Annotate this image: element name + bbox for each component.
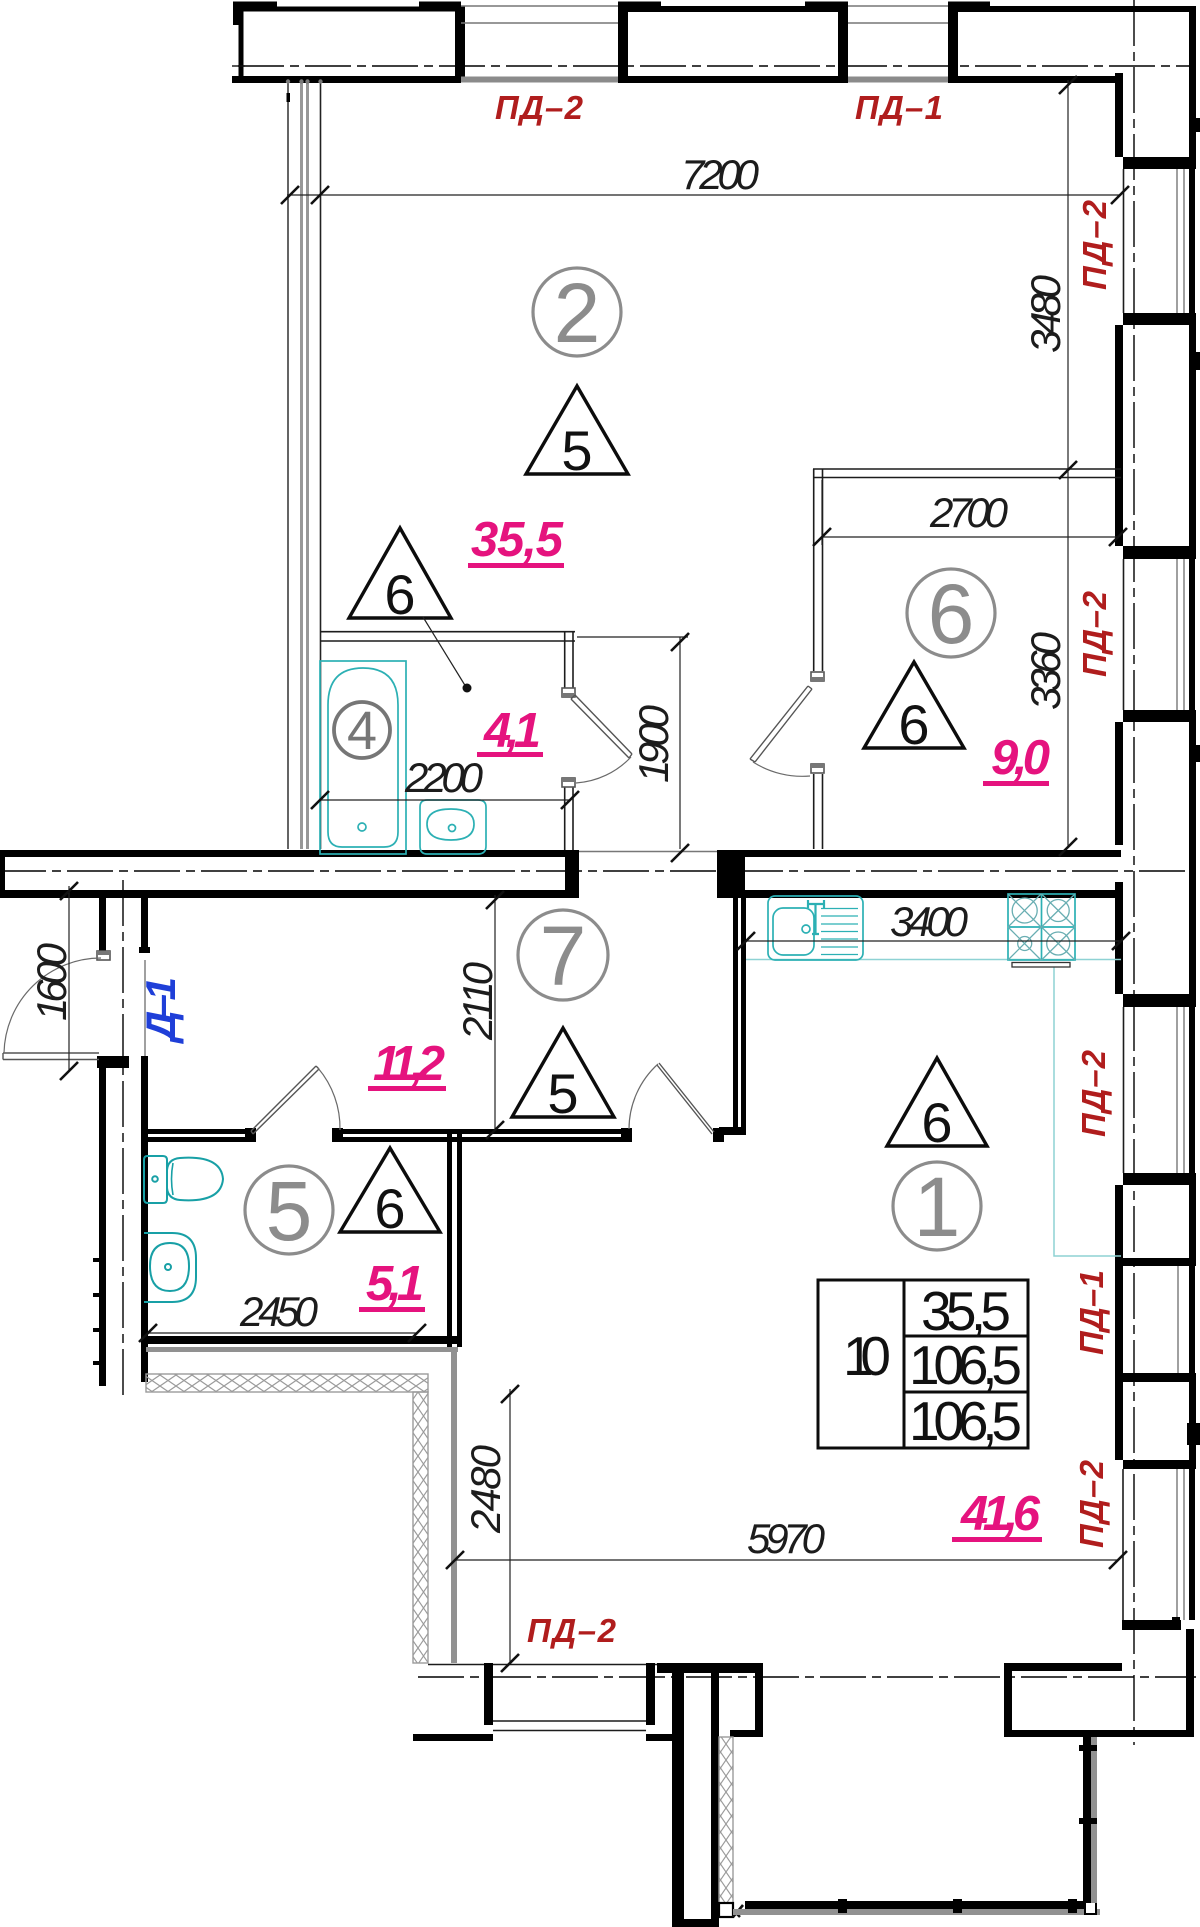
svg-text:ПД–1: ПД–1 — [1073, 1270, 1110, 1355]
svg-text:ПД–2: ПД–2 — [1073, 1459, 1110, 1548]
svg-text:3400: 3400 — [890, 898, 969, 945]
svg-text:6: 6 — [928, 567, 975, 661]
svg-text:5: 5 — [266, 1164, 313, 1258]
svg-text:41,6: 41,6 — [960, 1487, 1041, 1541]
svg-text:6: 6 — [898, 693, 929, 756]
svg-text:2200: 2200 — [404, 754, 484, 801]
svg-text:7200: 7200 — [681, 151, 760, 198]
svg-text:3480: 3480 — [1022, 274, 1069, 353]
svg-text:ПД–2: ПД–2 — [527, 1612, 617, 1649]
svg-text:2700: 2700 — [929, 489, 1009, 536]
svg-text:2110: 2110 — [454, 961, 501, 1041]
svg-text:106,5: 106,5 — [909, 1334, 1022, 1396]
svg-text:11,2: 11,2 — [373, 1037, 445, 1091]
svg-text:6: 6 — [384, 563, 415, 626]
svg-text:6: 6 — [921, 1091, 952, 1154]
svg-text:1600: 1600 — [28, 942, 75, 1021]
svg-text:5,1: 5,1 — [366, 1257, 424, 1311]
svg-text:ПД–2: ПД–2 — [1075, 1049, 1112, 1137]
svg-text:10: 10 — [843, 1325, 891, 1387]
svg-text:4,1: 4,1 — [483, 704, 541, 758]
svg-text:5: 5 — [561, 419, 592, 482]
svg-text:1: 1 — [914, 1160, 961, 1254]
svg-text:2450: 2450 — [239, 1288, 319, 1335]
svg-text:35,5: 35,5 — [921, 1280, 1011, 1342]
svg-text:106,5: 106,5 — [909, 1390, 1022, 1452]
svg-text:1900: 1900 — [630, 704, 677, 783]
svg-text:Д–1: Д–1 — [137, 977, 184, 1044]
svg-text:7: 7 — [540, 909, 587, 1003]
svg-text:5970: 5970 — [747, 1515, 826, 1562]
svg-text:2: 2 — [554, 266, 601, 360]
svg-text:35,5: 35,5 — [471, 513, 564, 567]
svg-text:5: 5 — [547, 1062, 578, 1125]
svg-text:4: 4 — [347, 701, 377, 761]
svg-text:ПД–1: ПД–1 — [855, 89, 943, 126]
svg-text:9,0: 9,0 — [991, 731, 1050, 785]
svg-text:2480: 2480 — [462, 1444, 509, 1534]
svg-text:ПД–2: ПД–2 — [495, 89, 584, 126]
svg-text:ПД–2: ПД–2 — [1076, 590, 1113, 677]
svg-text:6: 6 — [374, 1177, 405, 1240]
svg-text:3360: 3360 — [1022, 631, 1069, 710]
svg-text:ПД–2: ПД–2 — [1076, 199, 1113, 290]
